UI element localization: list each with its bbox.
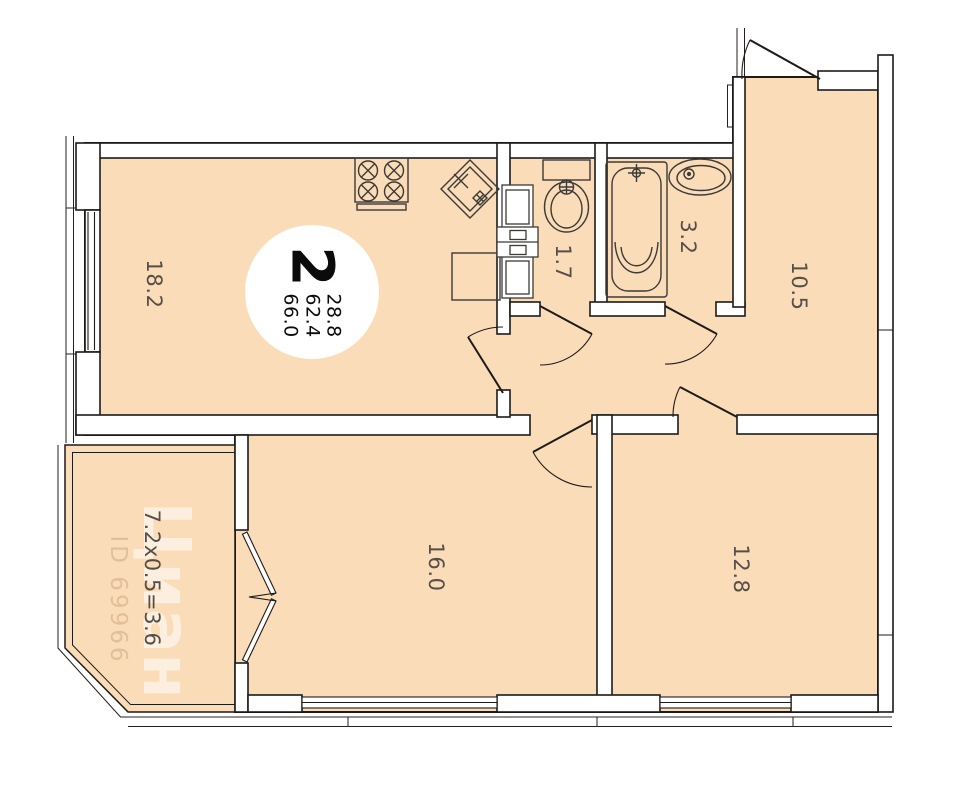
floor-plan-drawing	[0, 0, 960, 786]
secondary-area-value: 62.4	[301, 294, 322, 338]
areas-list: 28.8 62.4 66.0	[280, 294, 344, 338]
room-label-living-room: 18.2	[142, 259, 166, 308]
living-area-value: 28.8	[323, 294, 344, 338]
entry-door	[742, 40, 820, 79]
room-label-bedroom-low: 12.8	[729, 544, 753, 593]
room-label-bedroom-right: 10.5	[787, 261, 811, 310]
rooms-count: 2	[287, 246, 336, 286]
badge-content: 2 28.8 62.4 66.0	[280, 246, 344, 338]
room-label-bathroom: 3.2	[676, 219, 700, 254]
utility-duct-icon	[497, 185, 538, 298]
room-label-wc: 1.7	[551, 244, 575, 279]
floor-plan: Циан ID 69966 18.21.73.210.516.012.87.2x…	[0, 0, 960, 786]
apartment-summary-badge: 2 28.8 62.4 66.0	[245, 225, 379, 359]
room-label-room-bottom: 16.0	[424, 542, 448, 591]
total-area-value: 66.0	[280, 294, 301, 338]
room-label-balcony: 7.2x0.5=3.6	[140, 510, 164, 647]
